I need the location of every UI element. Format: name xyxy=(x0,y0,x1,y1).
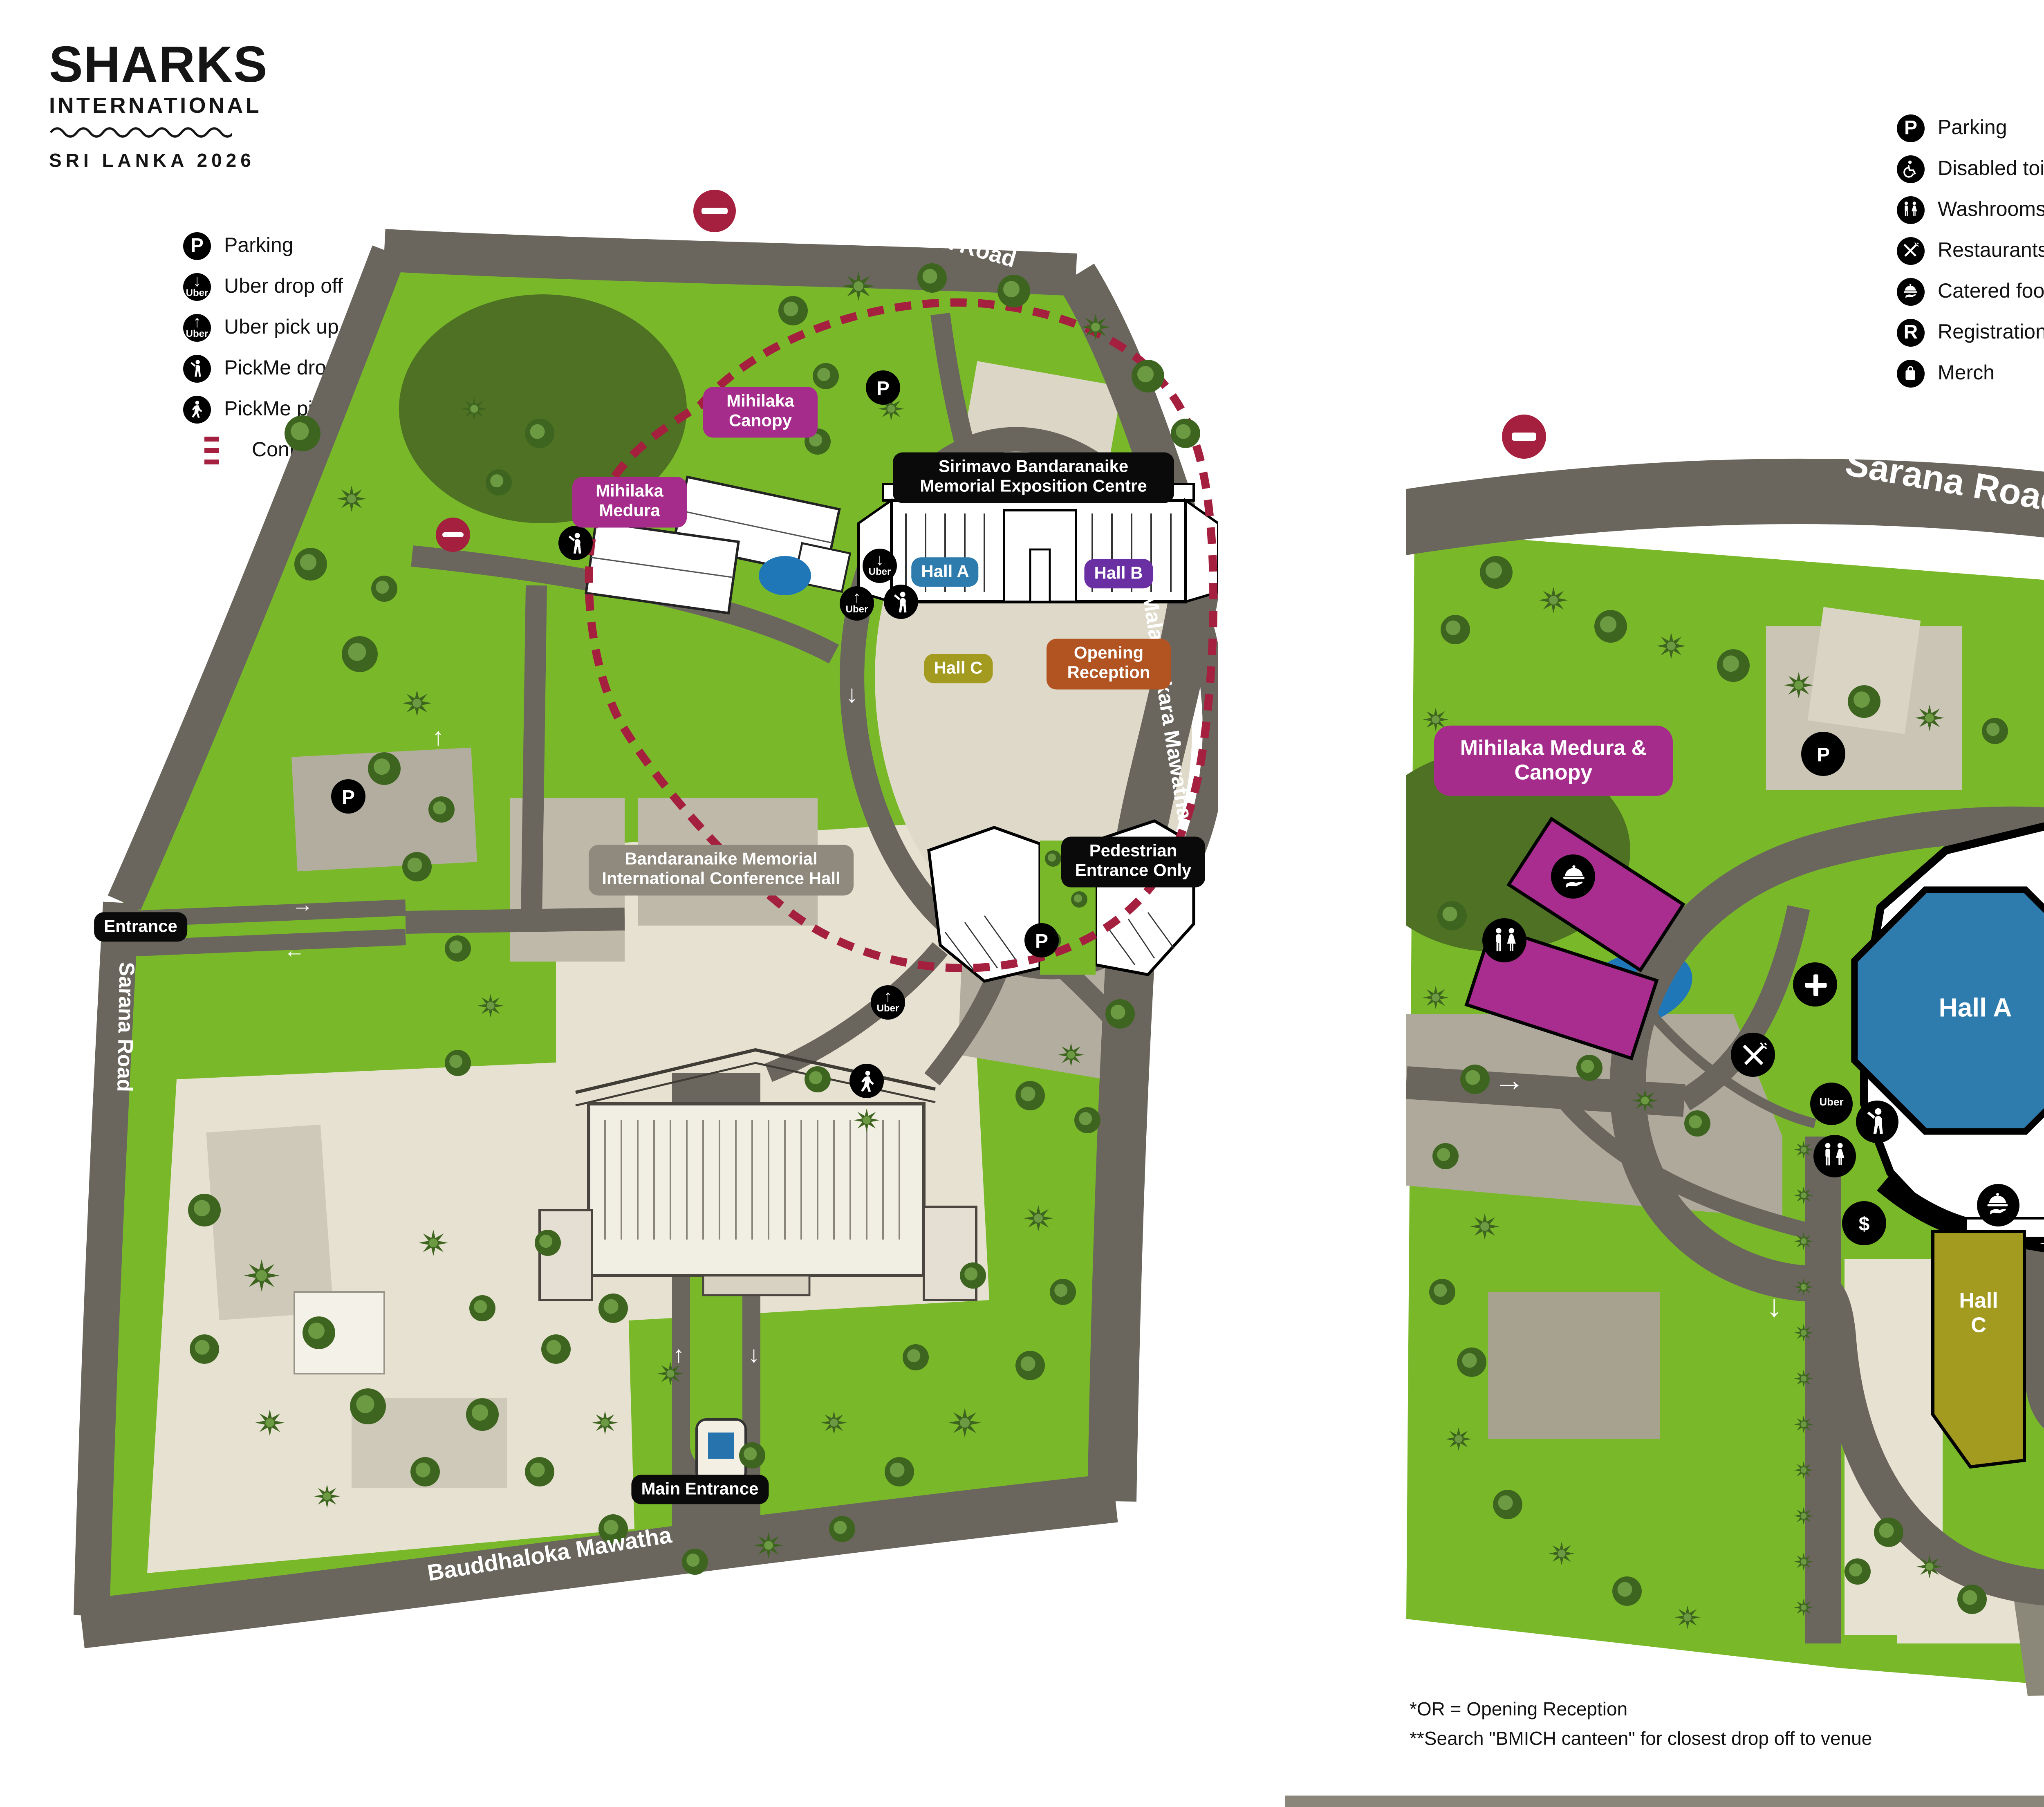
right-map-legend-col1: PParkingDisabled toiletWashroomsRestaura… xyxy=(1897,111,2044,406)
direction-arrow-left: ← xyxy=(284,938,305,962)
legend-item-catered-food: Catered food xyxy=(1897,275,2044,307)
footnote-search: **Search "BMICH canteen" for closest dro… xyxy=(1410,1730,1872,1750)
washrooms-icon xyxy=(1813,1135,1856,1177)
label-pedestrian-entrance: Pedestrian Entrance Only xyxy=(1061,837,1205,887)
direction-arrow-down: ↓ xyxy=(846,681,858,709)
logo-title: SHARKS xyxy=(49,39,268,90)
label-hall-a: Hall A xyxy=(911,557,979,587)
pickme-drop-off-icon xyxy=(884,585,918,619)
direction-arrow-right: → xyxy=(292,892,313,917)
parking-icon: P xyxy=(1024,923,1059,957)
label-mihilaka-medura-canopy: Mihilaka Medura & Canopy xyxy=(1434,726,1673,796)
legend-label: Washrooms xyxy=(1938,198,2044,221)
label-entrance: Entrance xyxy=(94,912,187,942)
legend-item-disabled-toilet: Disabled toilet xyxy=(1897,152,2044,185)
legend-item-washrooms: Washrooms xyxy=(1897,193,2044,226)
ambulance-icon xyxy=(1793,962,1837,1007)
restaurants-icon xyxy=(1731,1033,1775,1077)
washrooms-icon xyxy=(1482,918,1526,962)
logo-wave-decoration xyxy=(49,126,232,139)
wheelchair-icon xyxy=(1897,155,1925,182)
legend-label: Restaurants ($) xyxy=(1938,239,2044,262)
restaurants-icon xyxy=(1897,236,1925,264)
catered-food-icon xyxy=(1551,854,1595,899)
direction-arrow-up: ↑ xyxy=(673,1341,684,1367)
parking-icon: P xyxy=(1897,114,1925,141)
legend-label: Catered food xyxy=(1938,280,2044,303)
pickme-drop-off-icon xyxy=(558,526,593,560)
label-opening-reception: Opening Reception xyxy=(1047,639,1171,689)
detail-map-graphic xyxy=(1406,368,2044,1709)
direction-arrow-down: ↓ xyxy=(748,1341,760,1367)
label-mihilaka-canopy: Mihilaka Canopy xyxy=(703,387,818,437)
uber-pick-up-icon: ↑Uber xyxy=(871,985,905,1020)
label-exposition-centre: Sirimavo Bandaranaike Memorial Expositio… xyxy=(893,453,1174,503)
direction-arrow-right: → xyxy=(642,568,666,596)
dashes-icon xyxy=(183,436,239,464)
catered-icon xyxy=(1897,277,1925,305)
no-entry-icon xyxy=(693,190,736,232)
label-bmich: Bandaranaike Memorial International Conf… xyxy=(589,845,854,895)
label-hall-a: Hall A xyxy=(1939,995,2012,1026)
catered-food-icon xyxy=(1977,1184,2019,1226)
legend-label: Parking xyxy=(1938,116,2007,139)
logo-subtitle: INTERNATIONAL xyxy=(49,93,268,118)
legend-label: Registration xyxy=(1938,321,2044,343)
label-main-entrance: Main Entrance xyxy=(631,1475,768,1505)
legend-item-parking: PParking xyxy=(1897,111,2007,144)
uber-icon: Uber xyxy=(1810,1083,1853,1125)
label-mihilaka-medura: Mihilaka Medura xyxy=(572,477,687,527)
legend-item-restaurants: Restaurants ($) xyxy=(1897,234,2044,267)
parking-icon: P xyxy=(1801,732,1845,776)
atm-icon: $ xyxy=(1842,1201,1886,1245)
registration-icon: R xyxy=(1897,318,1925,346)
label-hall-b: Hall B xyxy=(1084,559,1152,589)
pickme-icon xyxy=(183,354,211,382)
legend-item-registration: RRegistration xyxy=(1897,316,2044,348)
merch-icon xyxy=(1897,359,1925,387)
direction-arrow-up: ↑ xyxy=(432,724,444,751)
no-entry-icon xyxy=(436,518,470,552)
overview-map: Sarana Road Sarana Road Malalasekara Maw… xyxy=(49,164,1218,1701)
detail-map: Sarana Road Malalasekara Mawatha Mihilak… xyxy=(1406,368,2044,1709)
pickme-pick-up-icon xyxy=(849,1064,884,1098)
parking-icon: P xyxy=(866,370,900,405)
road-label-sarana-left: Sarana Road xyxy=(112,962,139,1092)
pickme-icon xyxy=(1856,1101,1898,1143)
parking-icon: P xyxy=(331,779,365,814)
bottom-road-edge xyxy=(1285,1796,2044,1807)
legend-label: Disabled toilet xyxy=(1938,157,2044,180)
label-hall-c: Hall C xyxy=(1951,1288,2006,1338)
venue-map-page: SHARKS INTERNATIONAL SRI LANKA 2026 PPar… xyxy=(0,0,2044,1807)
direction-arrow-right: → xyxy=(1494,1065,1525,1101)
uber-pick-up-icon: ↑Uber xyxy=(840,586,874,621)
walker-icon xyxy=(183,395,211,423)
washrooms-icon xyxy=(1897,195,1925,223)
uber-drop-off-icon: ↓Uber xyxy=(863,549,897,583)
footnote-or: *OR = Opening Reception xyxy=(1410,1701,1627,1720)
hall-c-building xyxy=(1933,1231,2024,1467)
label-hall-c: Hall C xyxy=(924,654,992,684)
event-logo: SHARKS INTERNATIONAL SRI LANKA 2026 xyxy=(49,39,268,172)
direction-arrow-down: ↓ xyxy=(1766,1290,1782,1326)
no-entry-icon xyxy=(1502,415,1546,459)
